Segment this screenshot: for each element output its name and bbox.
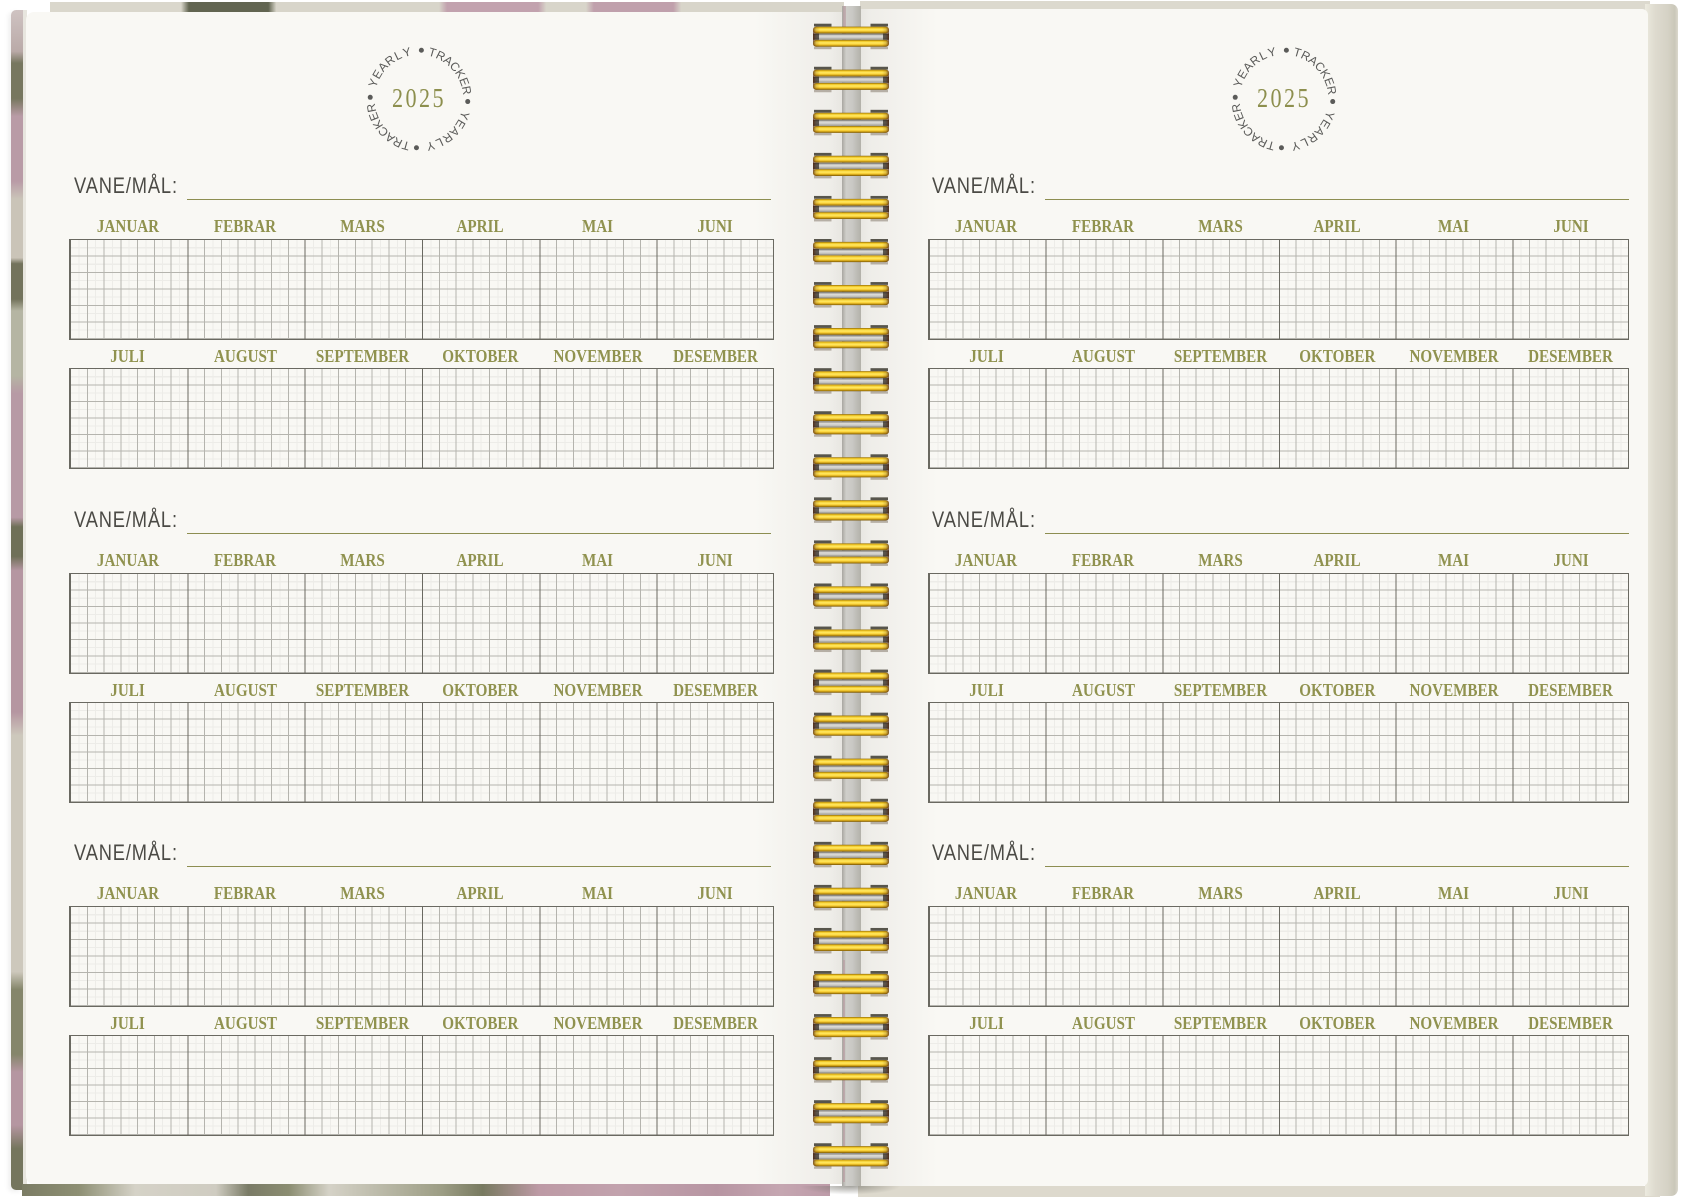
svg-text:R: R — [1323, 84, 1338, 95]
svg-text:Y: Y — [425, 138, 436, 154]
svg-text:Y: Y — [1266, 44, 1277, 60]
svg-text:R: R — [363, 102, 378, 113]
svg-text:2025: 2025 — [392, 84, 446, 114]
svg-text:R: R — [1228, 102, 1243, 113]
svg-text:R: R — [458, 85, 473, 96]
svg-text:Y: Y — [1290, 138, 1301, 154]
svg-text:2025: 2025 — [1256, 84, 1310, 114]
svg-text:Y: Y — [401, 45, 412, 61]
